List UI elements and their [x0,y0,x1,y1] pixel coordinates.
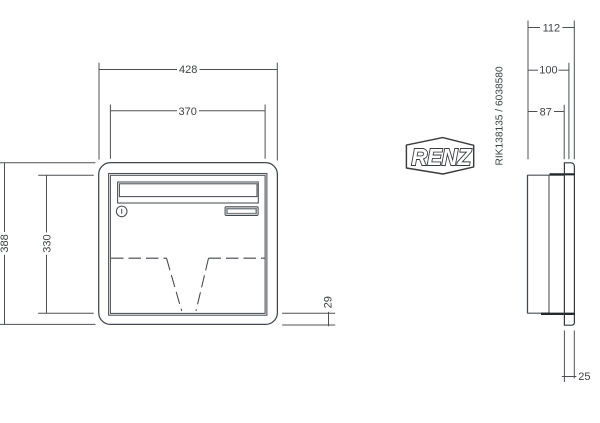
svg-text:29: 29 [323,296,335,308]
svg-text:RENZ: RENZ [411,144,471,170]
svg-text:370: 370 [179,106,197,118]
svg-text:330: 330 [42,234,54,252]
svg-text:428: 428 [179,64,197,76]
svg-text:100: 100 [539,65,557,77]
svg-text:112: 112 [543,23,561,35]
svg-text:RIK138135 / 6038580: RIK138135 / 6038580 [495,66,506,165]
svg-text:388: 388 [0,234,11,252]
svg-text:87: 87 [540,106,552,118]
svg-text:25: 25 [578,371,590,383]
